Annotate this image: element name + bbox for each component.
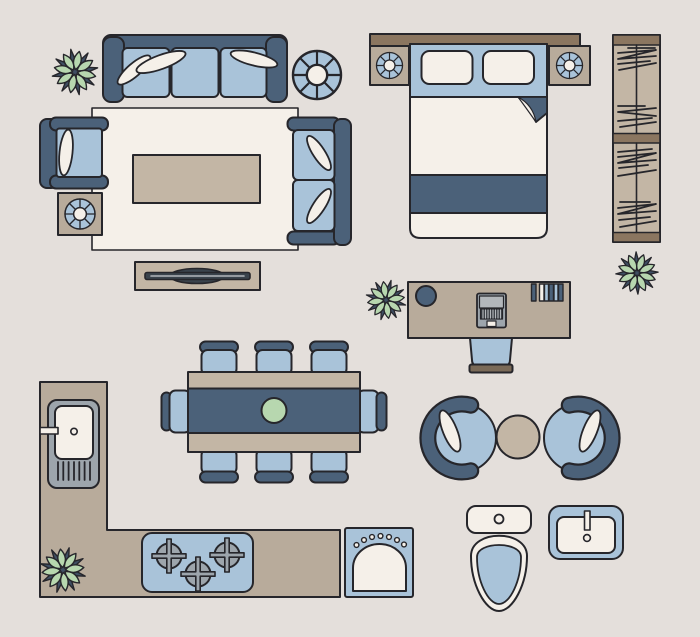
drainboard xyxy=(58,462,90,480)
dining-group xyxy=(162,342,387,483)
book xyxy=(549,284,554,301)
sofa-arm-left xyxy=(103,37,124,102)
living-room-group xyxy=(40,35,351,290)
book xyxy=(554,284,558,301)
wardrobe-shelf xyxy=(613,134,660,144)
washing-machine-lid xyxy=(353,544,406,591)
loveseat-back xyxy=(334,119,351,245)
book xyxy=(540,284,545,301)
flush-button xyxy=(495,515,504,524)
swivel-chair-left xyxy=(428,404,496,472)
loveseat xyxy=(288,118,352,246)
blanket xyxy=(410,175,547,213)
round-side-table-icon xyxy=(293,51,341,99)
potted-plant-icon xyxy=(50,47,100,97)
wardrobe xyxy=(613,35,660,242)
office-group xyxy=(365,279,570,373)
kitchen-sink xyxy=(40,400,99,488)
book xyxy=(545,284,549,301)
book xyxy=(532,284,537,301)
gas-stove xyxy=(142,533,253,592)
book xyxy=(559,284,564,301)
dining-chair-back xyxy=(255,472,293,483)
round-coffee-table xyxy=(497,416,540,459)
armchair xyxy=(40,118,108,189)
wardrobe-shelf xyxy=(613,233,660,243)
centerpiece-bowl xyxy=(262,398,287,423)
sink-drain xyxy=(584,535,591,542)
bedroom-group xyxy=(370,34,590,238)
double-bed xyxy=(410,44,547,238)
round-tray-icon xyxy=(65,199,95,229)
desk-books xyxy=(532,284,564,301)
dining-chair-back xyxy=(377,393,387,431)
nightstand-left xyxy=(370,46,409,85)
bathroom-sink xyxy=(549,506,623,559)
office-desk xyxy=(408,282,570,338)
three-seat-sofa xyxy=(103,35,287,102)
coffee-table xyxy=(133,155,260,203)
bed-pillow xyxy=(483,51,534,84)
potted-plant-icon xyxy=(365,279,407,321)
dining-table xyxy=(188,372,360,452)
toilet xyxy=(467,506,531,611)
faucet xyxy=(585,511,591,530)
accent-table xyxy=(58,193,102,235)
bathroom-group xyxy=(345,506,623,611)
swivel-chair-right xyxy=(544,404,612,472)
wardrobe-shelf xyxy=(613,35,660,45)
laptop-keyboard xyxy=(481,309,503,319)
lounge-group xyxy=(428,404,612,472)
faucet xyxy=(40,428,58,435)
floorplan-canvas xyxy=(0,0,700,637)
bed-pillow xyxy=(422,51,473,84)
dining-chair-back xyxy=(310,472,348,483)
washing-machine xyxy=(345,528,413,597)
potted-plant-icon xyxy=(612,248,662,298)
laptop-screen xyxy=(480,296,504,308)
sofa-arm-right xyxy=(266,37,287,102)
round-tray-icon xyxy=(377,53,403,79)
nightstand-right xyxy=(549,46,590,85)
dining-chair-back xyxy=(200,472,238,483)
laptop-trackpad xyxy=(487,321,496,327)
desk-chair-back xyxy=(470,365,513,373)
loveseat-arm xyxy=(288,118,340,131)
loveseat-arm xyxy=(288,232,340,245)
tv-console xyxy=(135,262,260,290)
round-tray-icon xyxy=(557,53,583,79)
desk-chair-seat xyxy=(470,338,512,366)
desk-round-object xyxy=(416,286,436,306)
laptop xyxy=(477,294,506,328)
desk-chair xyxy=(470,338,513,373)
sink-drain xyxy=(71,428,77,434)
floorplan-svg xyxy=(0,0,700,637)
